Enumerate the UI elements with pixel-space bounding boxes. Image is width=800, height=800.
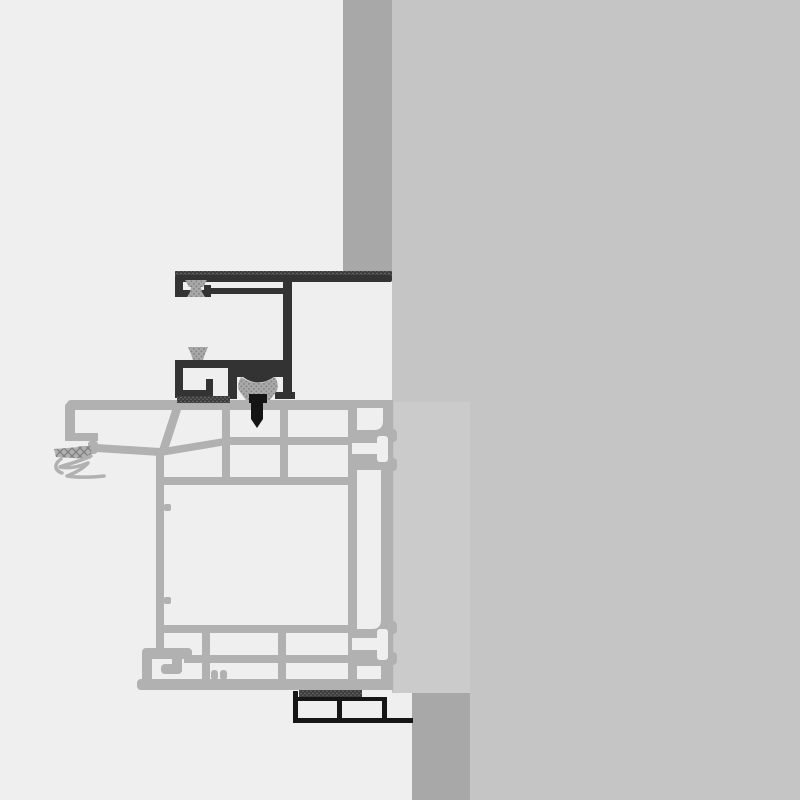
subsill-bottom-wall [293,718,413,723]
cover-profile-lower-wall [211,288,288,294]
cover-profile-clamp-web [228,360,292,377]
cover-profile-wall-foot [275,392,295,399]
frame-tooth-1 [211,670,218,680]
frame-divider-2 [280,410,288,485]
frame-foot-drop [142,656,152,682]
frame-gasket-hook-bar [65,433,98,441]
cover-profile-box2-lip [206,379,213,398]
section-drawing-svg [0,0,800,800]
frame-tooth-2 [220,670,227,680]
frame-divider-1 [222,410,230,485]
fixing-lug-t-slot-lower-stem [352,638,379,650]
reveal-infill-block [394,402,470,693]
frame-divider-3 [202,625,210,680]
cover-profile-short-wall [228,368,237,399]
frame-corner-notch-cell [357,408,383,430]
cover-profile-box1-lip [204,285,211,297]
fixing-lug-t-slot-upper-head [377,436,388,462]
cover-profile-vertical-wall [283,279,292,399]
frame-fixing-tab-4 [388,652,397,665]
frame-divider-4 [278,625,286,680]
frame-nub-upper [164,504,171,511]
compression-tape-upper [177,396,230,403]
frame-fixing-tab-2 [388,458,397,471]
fixing-lug-t-slot-lower-head [377,629,388,660]
frame-foot-tongue [161,664,182,674]
wall-masonry-strip [343,0,392,276]
screw-collar [249,394,267,403]
base-support-block [412,693,470,800]
compression-tape-lower [299,690,362,697]
frame-web-row2 [158,477,356,485]
technical-drawing [0,0,800,800]
frame-nub-lower [164,597,171,604]
frame-bottom-right-cell [357,666,381,679]
frame-fixing-tab-3 [388,621,397,634]
frame-fixing-tab-1 [388,429,397,442]
frame-middle-cell [357,470,381,629]
background-below-sill [0,693,412,800]
frame-web-row1 [222,437,356,445]
fixing-lug-t-slot-upper-stem [352,443,379,454]
frame-web-row3 [160,625,356,633]
